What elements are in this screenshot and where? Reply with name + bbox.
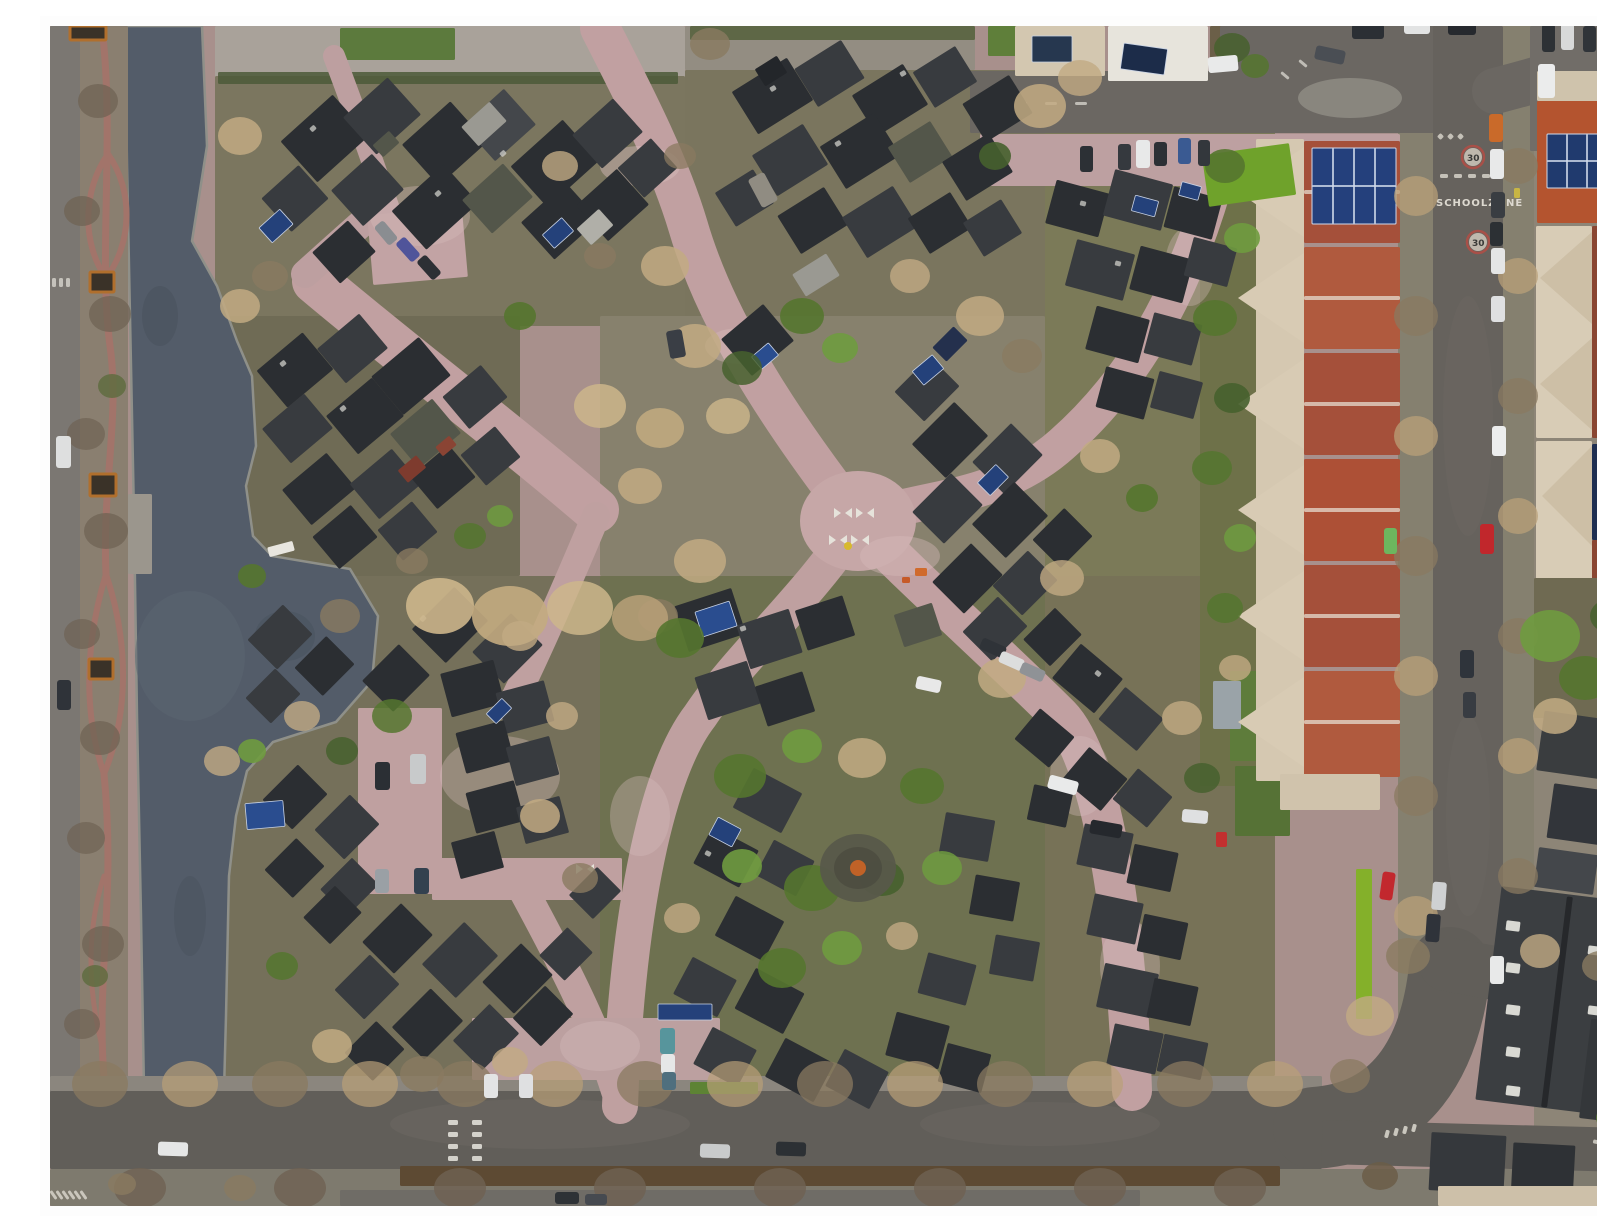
svg-text:SCHOOLZONE: SCHOOLZONE bbox=[1436, 198, 1523, 209]
svg-text:30: 30 bbox=[1472, 239, 1485, 249]
svg-text:30: 30 bbox=[1467, 154, 1480, 164]
park-strip bbox=[50, 26, 131, 1166]
aerial-photo-canvas: 3030SCHOOLZONE bbox=[40, 16, 1597, 1216]
aerial-photo: 3030SCHOOLZONE Top-down aerial photograp… bbox=[40, 16, 1597, 1216]
